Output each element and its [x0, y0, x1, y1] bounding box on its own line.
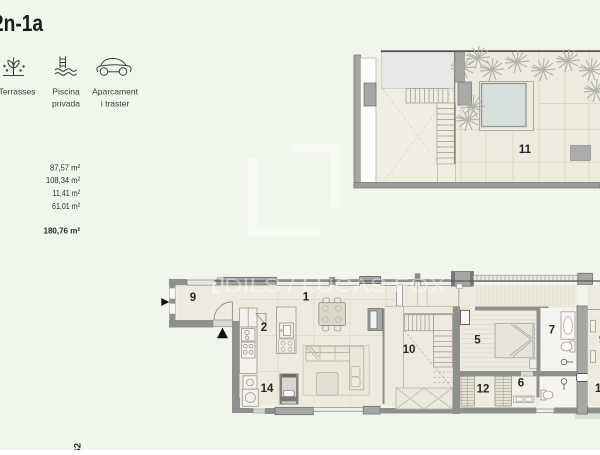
svg-text:Aparcament: Aparcament — [92, 87, 138, 97]
svg-text:DILS / LUCAS FOX: DILS / LUCAS FOX — [224, 275, 446, 297]
svg-text:12: 12 — [477, 384, 490, 396]
svg-text:108,34 m²: 108,34 m² — [46, 175, 80, 185]
svg-text:privada: privada — [52, 99, 80, 109]
svg-text:1: 1 — [595, 383, 600, 395]
svg-text:62: 62 — [73, 443, 84, 450]
svg-text:i traster: i traster — [101, 99, 130, 109]
svg-text:2n-1a: 2n-1a — [0, 10, 43, 36]
svg-text:Terrasses: Terrasses — [0, 87, 35, 97]
svg-text:Piscina: Piscina — [52, 87, 80, 97]
svg-text:11: 11 — [519, 144, 532, 156]
svg-text:180,76 m²: 180,76 m² — [44, 226, 81, 236]
svg-text:11,41 m²: 11,41 m² — [53, 188, 81, 198]
svg-text:7: 7 — [549, 325, 555, 337]
svg-text:87,57 m²: 87,57 m² — [50, 163, 80, 173]
svg-text:10: 10 — [403, 344, 416, 356]
svg-text:9: 9 — [190, 292, 196, 304]
svg-text:61,01 m²: 61,01 m² — [52, 201, 80, 211]
svg-text:5: 5 — [474, 335, 481, 347]
svg-text:2: 2 — [261, 322, 267, 334]
svg-text:14: 14 — [261, 383, 274, 395]
svg-text:6: 6 — [518, 378, 524, 390]
